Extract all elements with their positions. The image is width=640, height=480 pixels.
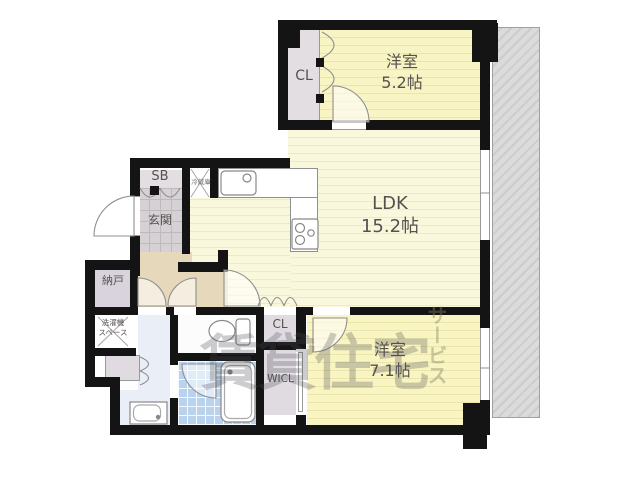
room-size: 15.2帖 [361,216,419,237]
label-entrance: 玄関 [137,213,183,229]
label-shoe-box: SB [138,169,182,186]
room-label-ldk: LDK15.2帖 [330,192,450,239]
wall [264,342,297,350]
label-storage: 納戸 [93,274,133,288]
wall [128,307,138,315]
room-bathroom [178,361,256,425]
wall [88,348,136,356]
wall [218,250,228,272]
corner-block [278,20,300,48]
wall [278,20,497,30]
bedroom-window [480,328,490,400]
door-pivot [150,186,159,195]
bedroom-door-opening [332,120,366,130]
corner-block [472,23,498,62]
room-toilet [178,315,256,353]
room-name: 洋室 [386,52,418,71]
wall [178,353,258,361]
wall [166,307,174,315]
label-refrigerator: 冷蔵庫 [188,178,214,186]
corner-block [463,403,487,449]
label-laundry: 洗濯機 スペース [94,318,132,338]
wall [296,415,306,427]
door-pivot [316,58,324,67]
front-door-arc [94,196,134,236]
room-size: 5.2帖 [381,73,422,92]
room-size: 7.1帖 [369,361,410,380]
wall [88,307,132,315]
door-pivot [316,94,324,103]
balcony-area [492,27,540,418]
wall [110,377,120,435]
room-washroom-lower [120,390,170,425]
kitchen-counter-leg [290,197,318,252]
wall [196,307,258,315]
wall [296,307,313,315]
wall [170,398,178,427]
label-walk-in-closet: WICL [261,373,300,387]
ldk-window [480,150,490,240]
room-label-bedroom-5-2: 洋室5.2帖 [337,52,467,94]
wall [366,120,490,130]
wall [170,315,178,365]
floorplan: 洋室5.2帖 LDK15.2帖 洋室7.1帖 CL SB 玄関 納戸 洗濯機 ス… [0,0,640,480]
kitchen-counter [218,168,318,198]
room-name: LDK [372,193,408,214]
wall [278,120,332,130]
label-closet-top: CL [284,67,324,85]
label-closet-bottom: CL [262,317,298,333]
wall [480,240,490,328]
wall [350,307,480,315]
room-label-bedroom-7-1: 洋室7.1帖 [330,340,450,382]
room-name: 洋室 [374,340,406,359]
